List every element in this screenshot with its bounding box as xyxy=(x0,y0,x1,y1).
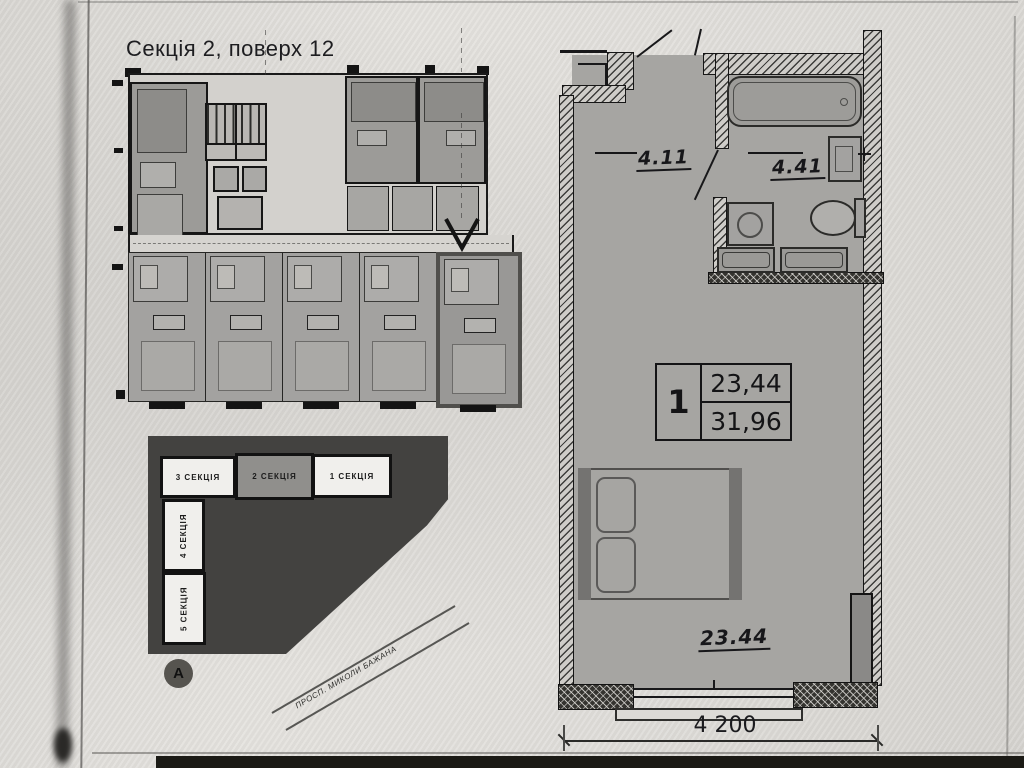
wall-tick xyxy=(114,226,123,231)
building-key-plan: 3 СЕКЦІЯ 2 СЕКЦІЯ 1 СЕКЦІЯ 4 СЕКЦІЯ 5 СЕ… xyxy=(148,436,450,656)
apartment-block xyxy=(345,76,418,184)
window-line xyxy=(633,696,795,698)
axis-dash-line xyxy=(461,28,462,72)
wall-pier xyxy=(558,684,634,710)
wall xyxy=(560,50,607,53)
niche-line xyxy=(605,63,607,85)
wall-tick xyxy=(116,390,125,399)
apartment-unit xyxy=(282,252,362,402)
floor-overview-plan xyxy=(125,68,520,408)
studio-row xyxy=(128,252,514,400)
section-4-label: 4 СЕКЦІЯ xyxy=(179,513,188,557)
washing-machine-door xyxy=(737,212,763,238)
apartment-info-box: 1 23,44 31,96 xyxy=(655,363,792,441)
section-5-box: 5 СЕКЦІЯ xyxy=(162,572,206,645)
bathroom-mark xyxy=(392,186,433,231)
unit-bathroom xyxy=(133,256,188,302)
unit-window xyxy=(149,402,185,409)
axis-dash-line xyxy=(461,113,462,223)
furniture-mark xyxy=(140,162,176,188)
apartment-block xyxy=(128,82,208,234)
apartment-detail-plan: 4.11 4.41 23.44 1 23,44 31,96 4 200 xyxy=(558,25,908,765)
unit-window xyxy=(460,405,496,412)
section-1-label: 1 СЕКЦІЯ xyxy=(330,472,374,481)
dimension-extension xyxy=(877,725,879,751)
apartment-unit xyxy=(205,252,285,402)
furniture-mark xyxy=(351,82,416,122)
section-2-box: 2 СЕКЦІЯ xyxy=(235,453,314,500)
stair-divider xyxy=(235,103,237,161)
unit-table xyxy=(307,315,339,330)
furniture-mark xyxy=(357,130,387,146)
bathroom-mark xyxy=(347,186,389,231)
wall xyxy=(863,30,882,686)
apartment-unit xyxy=(128,252,208,402)
floor-plan-photo: Секція 2, поверх 12 xyxy=(0,0,1024,768)
hallway-area-label: 4.11 xyxy=(636,146,692,172)
unit-bed xyxy=(372,341,426,391)
bed-footboard xyxy=(729,468,742,600)
section-3-box: 3 СЕКЦІЯ xyxy=(160,456,236,498)
faucet-cross-icon xyxy=(863,148,865,161)
room-count: 1 xyxy=(657,365,702,439)
wall-tick xyxy=(114,148,123,153)
window-mullion xyxy=(713,680,715,690)
side-window xyxy=(850,593,873,687)
pillow xyxy=(596,537,636,593)
unit-table xyxy=(153,315,185,330)
niche-line xyxy=(578,63,607,65)
axis-marker-label: А xyxy=(173,665,184,682)
label-leader-line xyxy=(748,152,803,154)
bath-cabinet xyxy=(717,247,775,273)
living-area-value: 23,44 xyxy=(702,365,790,403)
dimension-extension xyxy=(563,725,565,751)
axis-dash-line xyxy=(265,30,266,78)
unit-table xyxy=(384,315,416,330)
wall xyxy=(708,272,884,284)
section-4-box: 4 СЕКЦІЯ xyxy=(162,499,205,572)
bathtub-drain xyxy=(840,98,848,106)
washing-machine xyxy=(727,202,774,246)
section-2-label: 2 СЕКЦІЯ xyxy=(252,472,296,481)
unit-window xyxy=(303,402,339,409)
wall-tick xyxy=(112,264,123,270)
bathtub xyxy=(727,76,862,127)
toilet-tank xyxy=(854,198,866,238)
section-5-label: 5 СЕКЦІЯ xyxy=(180,586,189,630)
unit-bathroom xyxy=(287,256,342,302)
unit-bathroom xyxy=(210,256,265,302)
unit-window xyxy=(380,402,416,409)
selected-unit-arrow-icon xyxy=(443,216,481,252)
page-title: Секція 2, поверх 12 xyxy=(126,36,335,62)
width-dimension-value: 4 200 xyxy=(665,713,785,738)
bathroom-area-label: 4.41 xyxy=(770,155,826,181)
section-3-label: 3 СЕКЦІЯ xyxy=(176,473,220,482)
unit-bathroom xyxy=(444,259,499,305)
unit-window xyxy=(226,402,262,409)
unit-bed xyxy=(141,341,195,391)
elevator xyxy=(213,166,239,192)
label-leader-line xyxy=(595,152,637,154)
fold-shadow-blob xyxy=(54,728,72,762)
entrance-door-swing xyxy=(636,29,672,57)
bath-cabinet xyxy=(780,247,848,273)
unit-table xyxy=(464,318,496,333)
unit-table xyxy=(230,315,262,330)
living-room-area-label: 23.44 xyxy=(698,624,771,653)
wall-tick xyxy=(112,80,123,86)
total-area-value: 31,96 xyxy=(702,403,790,439)
entrance-door-leaf xyxy=(694,29,702,56)
bathtub-inner xyxy=(733,82,856,121)
sink xyxy=(828,136,862,182)
wall xyxy=(559,95,574,686)
apartment-unit-selected xyxy=(436,252,522,408)
wall-pier xyxy=(793,682,878,708)
page-fold-shadow xyxy=(56,0,76,768)
furniture-mark xyxy=(424,82,484,122)
page-top-edge xyxy=(78,1,1018,3)
unit-bed xyxy=(295,341,349,391)
unit-bathroom xyxy=(364,256,419,302)
axis-marker: А xyxy=(164,659,193,688)
sink-basin xyxy=(835,146,853,172)
bed-headboard xyxy=(578,468,591,600)
elevator-lobby xyxy=(217,196,263,230)
screen-bottom-bezel xyxy=(156,756,1024,768)
section-1-box: 1 СЕКЦІЯ xyxy=(312,454,392,498)
dimension-line xyxy=(563,740,878,742)
page-bottom-edge xyxy=(92,752,1024,754)
apartment-unit xyxy=(359,252,439,402)
screen-right-edge xyxy=(1006,16,1016,768)
elevator xyxy=(242,166,267,192)
toilet xyxy=(810,200,856,236)
page-fold-line xyxy=(80,0,89,768)
pillow xyxy=(596,477,636,533)
furniture-mark xyxy=(137,89,187,153)
unit-bed xyxy=(218,341,272,391)
apartment-block xyxy=(418,76,486,184)
wall-tick xyxy=(425,65,435,73)
cabinet-inner xyxy=(785,252,843,268)
cabinet-inner xyxy=(722,252,770,268)
unit-bed xyxy=(452,344,506,394)
